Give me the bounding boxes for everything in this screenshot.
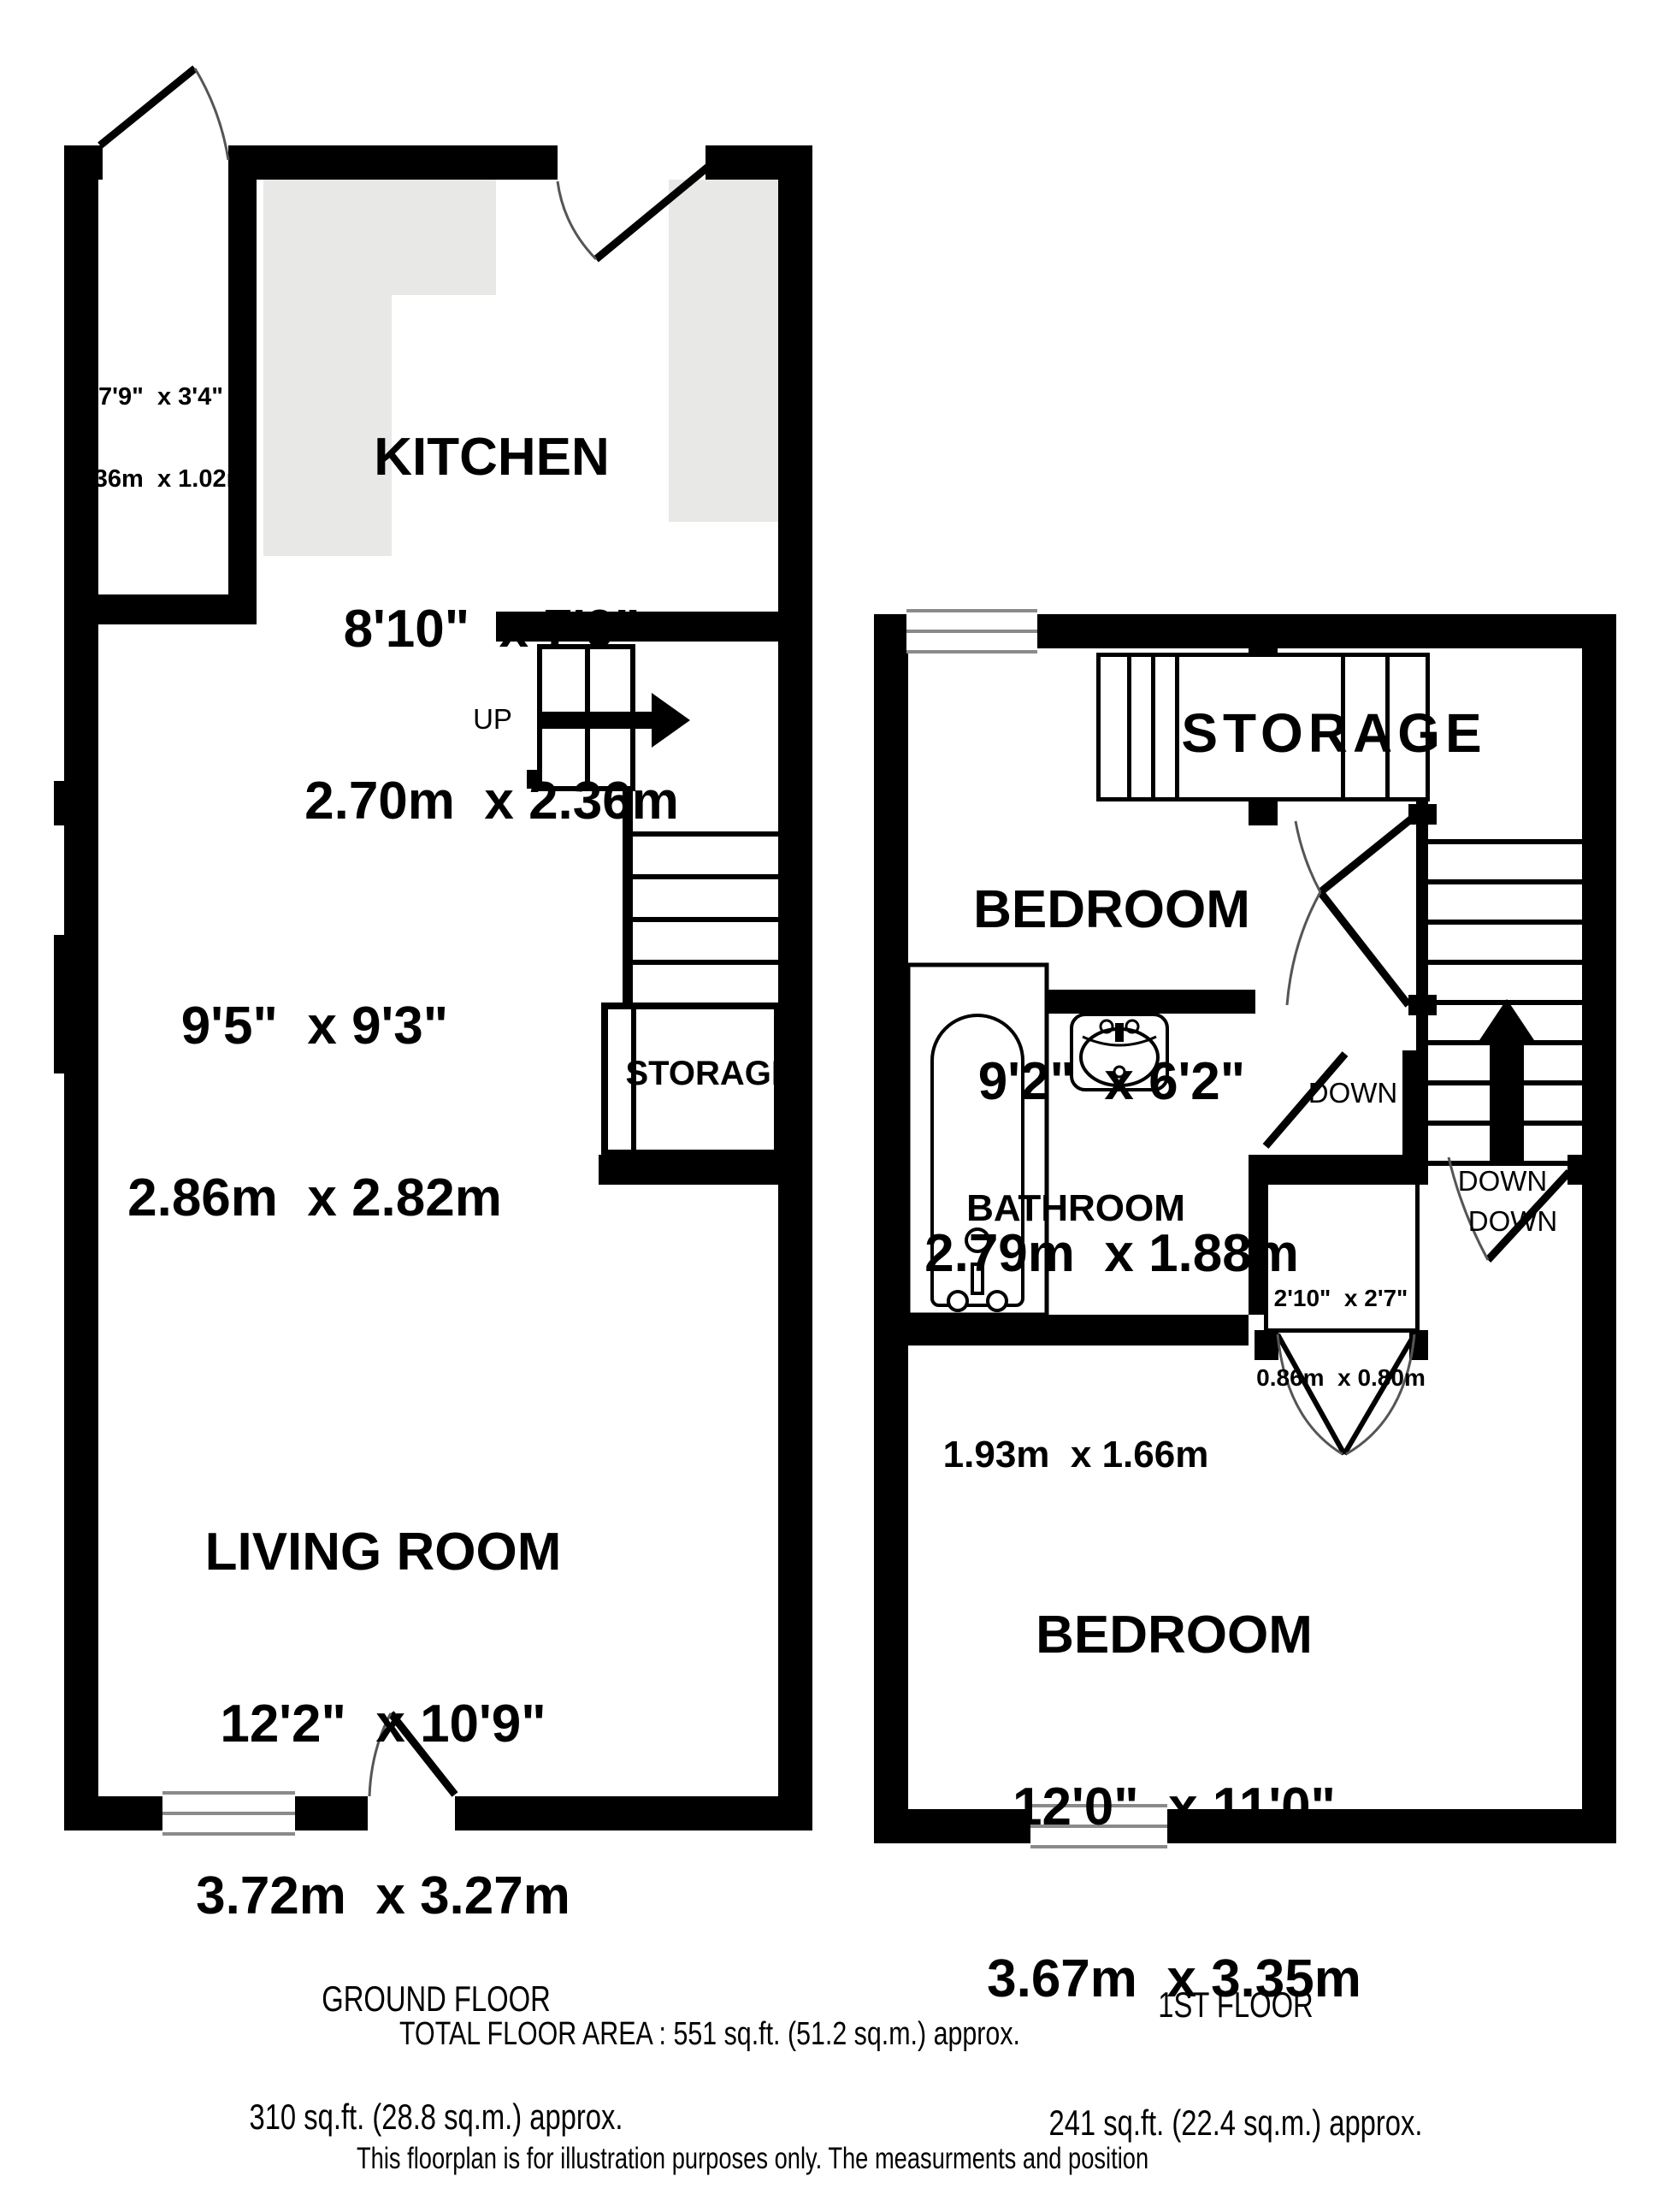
bathroom-label: BATHROOM 6'4" x 5'5" 1.93m x 1.66m	[943, 1106, 1209, 1558]
bathroom-dim-imperial: 6'4" x 5'5"	[943, 1311, 1209, 1352]
cupboard-dim-imperial: 2'10" x 2'7"	[1256, 1285, 1426, 1311]
hall-label: 9'5" x 9'3" 2.86m x 2.82m	[127, 883, 502, 1341]
bathroom-name: BATHROOM	[943, 1188, 1209, 1229]
bedroom2-dim-imperial: 12'0" x 11'0"	[987, 1778, 1361, 1836]
gf-storage-label: STORAGE	[625, 1055, 794, 1093]
entry-dim-imperial: 7'9" x 3'4"	[74, 383, 249, 411]
gf-kitchen-door-arc	[558, 181, 596, 259]
up-label: UP	[473, 703, 512, 736]
gf-entry-door-arc	[195, 68, 228, 160]
disclaimer-text: This floorplan is for illustration purpo…	[357, 2073, 1148, 2212]
cupboard-dim-metric: 0.86m x 0.80m	[1256, 1364, 1426, 1391]
down-label-3: DOWN	[1468, 1205, 1557, 1238]
total-floor-area: TOTAL FLOOR AREA : 551 sq.ft. (51.2 sq.m…	[399, 2016, 1020, 2053]
kitchen-name: KITCHEN	[304, 429, 679, 486]
living-room-dim-imperial: 12'2" x 10'9"	[196, 1695, 570, 1753]
entry-dim-metric: 2.36m x 1.02m	[74, 465, 249, 493]
first-floor-caption-title: 1ST FLOOR	[1048, 1985, 1422, 2025]
kitchen-dim-metric: 2.70m x 2.36m	[304, 772, 679, 830]
ff-bedroom1-door-leaf-2	[1320, 892, 1408, 1005]
hall-dim-metric: 2.86m x 2.82m	[127, 1169, 502, 1227]
kitchen-dim-imperial: 8'10" x 7'9"	[304, 600, 679, 658]
bedroom2-name: BEDROOM	[987, 1606, 1361, 1664]
ff-bedroom1-door-leaf-1	[1320, 814, 1417, 892]
kitchen-label: KITCHEN 8'10" x 7'9" 2.70m x 2.36m	[304, 314, 679, 944]
disclaimer-line-1: This floorplan is for illustration purpo…	[357, 2142, 1148, 2176]
floorplan-canvas: 7'9" x 3'4" 2.36m x 1.02m KITCHEN 8'10" …	[0, 0, 1659, 2212]
ff-bedroom1-door-arc-1	[1296, 821, 1320, 892]
bathroom-dim-metric: 1.93m x 1.66m	[943, 1434, 1209, 1476]
cupboard-label: 2'10" x 2'7" 0.86m x 0.80m	[1256, 1232, 1426, 1444]
entry-label: 7'9" x 3'4" 2.36m x 1.02m	[74, 328, 249, 547]
hall-dim-imperial: 9'5" x 9'3"	[127, 997, 502, 1055]
down-label-1: DOWN	[1308, 1077, 1397, 1109]
gf-kitchen-door-leaf	[596, 167, 708, 259]
down-label-2: DOWN	[1458, 1165, 1547, 1198]
ground-floor-caption-title: GROUND FLOOR	[249, 1979, 623, 2019]
ff-storage-label: STORAGE	[1181, 701, 1486, 765]
bedroom1-name: BEDROOM	[924, 881, 1299, 938]
gf-entry-door-leaf	[100, 68, 195, 145]
living-room-name: LIVING ROOM	[196, 1523, 570, 1581]
bedroom1-dim-imperial: 9'2" x 6'2"	[924, 1053, 1299, 1110]
